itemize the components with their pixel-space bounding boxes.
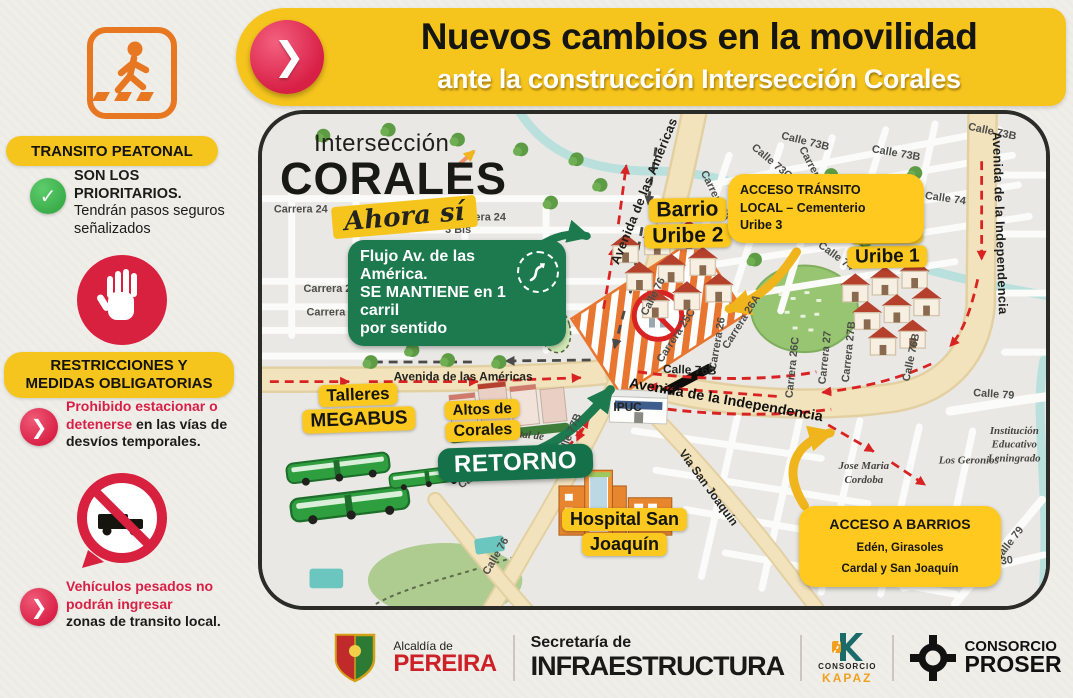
footer-divider — [892, 635, 894, 681]
trucks-restriction-red: Vehículos pesados no podrán ingresar — [66, 578, 213, 612]
footer-divider — [513, 635, 515, 681]
place-label: Cordoba — [845, 474, 884, 486]
infographic-page: ❯ Nuevos cambios en la movilidad ante la… — [0, 0, 1073, 698]
corales-logo: Intersección CORALES Ahora sí — [280, 130, 520, 233]
restrictions-heading-line1: RESTRICCIONES Y — [50, 357, 187, 375]
avenue-label: Avenida de las Américas — [394, 370, 533, 384]
callout-line: SE MANTIENE en 1 carril — [360, 284, 506, 319]
acceso-barrios-callout: ACCESO A BARRIOS Edén, Girasoles Cardal … — [799, 506, 1001, 587]
consorcio-kapaz-logo: CONSORCIO KAPAZ — [818, 631, 876, 685]
alcaldia-big-text: PEREIRA — [393, 652, 496, 676]
title-banner: ❯ Nuevos cambios en la movilidad ante la… — [236, 8, 1066, 106]
chevron-bullet-icon: ❯ — [20, 588, 58, 626]
callout-line: por sentido — [360, 320, 447, 337]
badge-line: Hospital San — [562, 508, 687, 531]
badge-line: Uribe 2 — [644, 223, 732, 249]
place-label: Institución — [989, 425, 1039, 437]
check-icon: ✓ — [30, 178, 66, 214]
badge-line: MEGABUS — [302, 406, 416, 434]
chevron-glyph: ❯ — [31, 595, 48, 620]
secretaria-infraestructura-logo: Secretaría de INFRAESTRUCTURA — [531, 635, 784, 680]
callout-line: Edén, Girasoles — [857, 542, 944, 554]
winding-road-icon — [517, 251, 559, 293]
talleres-megabus-badge: Talleres MEGABUS — [301, 382, 416, 434]
place-label: IPUC — [613, 400, 642, 414]
roundabout-icon — [910, 635, 956, 681]
badge-line: Barrio — [648, 197, 726, 222]
restrictions-heading: RESTRICCIONES Y MEDIDAS OBLIGATORIAS — [4, 352, 234, 398]
callout-line: Flujo Av. de las América. — [360, 248, 475, 283]
badge-line: Corales — [445, 420, 520, 443]
place-label: Leningrado — [987, 452, 1041, 464]
parking-restriction-text: Prohibido estacionar o detenerse en las … — [66, 398, 244, 451]
acceso-transito-callout: ACCESO TRÁNSITO LOCAL – Cementerio Uribe… — [728, 174, 924, 243]
place-label: Jose Maria — [838, 460, 890, 472]
flujo-callout: Flujo Av. de las América. SE MANTIENE en… — [348, 240, 566, 346]
pedestrian-text: SON LOS PRIORITARIOS. Tendrán pasos segu… — [74, 168, 239, 239]
hospital-badge: Hospital San Joaquín — [562, 508, 687, 556]
proser-big-text: PROSER — [964, 654, 1061, 676]
secretaria-big-text: INFRAESTRUCTURA — [531, 652, 784, 680]
chevron-bullet-icon: ❯ — [20, 408, 58, 446]
trucks-restriction-text: Vehículos pesados no podrán ingresar zon… — [66, 578, 256, 631]
chevron-glyph: ❯ — [31, 415, 48, 440]
badge-line: Joaquín — [582, 533, 667, 556]
altos-corales-badge: Altos de Corales — [444, 399, 521, 443]
kapaz-k-icon — [830, 631, 864, 663]
trucks-restriction-rest: zonas de transito local. — [66, 613, 221, 629]
no-trucks-icon — [70, 468, 174, 581]
pedestrian-heading: TRANSITO PEATONAL — [6, 136, 218, 166]
stop-hand-icon — [74, 252, 170, 353]
place-label: Educativo — [991, 439, 1038, 451]
footer: Alcaldía de PEREIRA Secretaría de INFRAE… — [322, 622, 1073, 694]
pedestrian-bold-text: SON LOS PRIORITARIOS. — [74, 168, 182, 202]
callout-line: LOCAL – Cementerio — [740, 201, 866, 215]
alcaldia-pereira-logo: Alcaldía de PEREIRA — [393, 640, 496, 676]
callout-line: Uribe 3 — [740, 218, 782, 232]
pereira-crest-icon — [333, 631, 377, 685]
badge-line: Talleres — [318, 383, 398, 408]
corales-logo-line3: Ahora sí — [331, 195, 478, 239]
page-title: Nuevos cambios en la movilidad — [344, 16, 1054, 58]
restrictions-heading-line2: MEDIDAS OBLIGATORIAS — [26, 375, 213, 393]
chevron-badge-icon: ❯ — [250, 20, 324, 94]
kapaz-big-text: KAPAZ — [822, 672, 872, 685]
consorcio-proser-logo: CONSORCIO PROSER — [910, 635, 1061, 681]
callout-line: ACCESO TRÁNSITO — [740, 183, 861, 197]
street-label: Calle 76B — [663, 362, 717, 378]
barrio-uribe2-badge: Barrio Uribe 2 — [644, 197, 732, 249]
footer-divider — [800, 635, 802, 681]
map: Carrera 24 Carrera 24 3 Bis Carrera 26 C… — [258, 110, 1050, 610]
badge-line: Altos de — [444, 399, 520, 421]
retorno-badge: RETORNO — [437, 443, 593, 482]
chevron-glyph: ❯ — [273, 38, 305, 76]
callout-line: ACCESO A BARRIOS — [829, 516, 970, 532]
badge-line: Uribe 1 — [847, 245, 928, 268]
check-glyph: ✓ — [40, 184, 57, 209]
corales-logo-line2: CORALES — [280, 158, 520, 201]
pedestrian-detail-text: Tendrán pasos seguros señalizados — [74, 203, 225, 237]
page-subtitle: ante la construcción Intersección Corale… — [344, 64, 1054, 95]
secretaria-small-text: Secretaría de — [531, 635, 784, 652]
callout-line: Cardal y San Joaquín — [842, 563, 959, 575]
pedestrian-crossing-icon — [86, 26, 178, 125]
